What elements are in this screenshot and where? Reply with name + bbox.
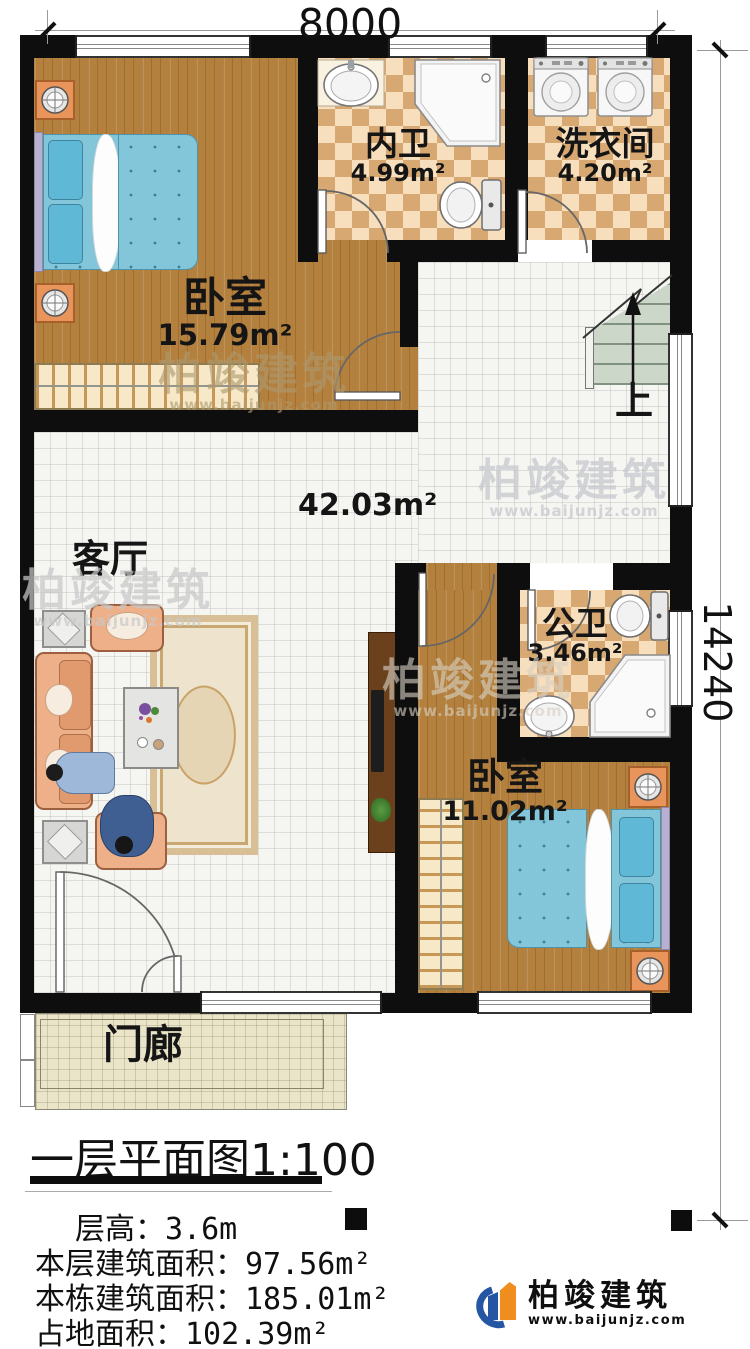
wall-bath-bottom-b [387, 240, 518, 262]
side-table [42, 820, 88, 864]
nightstand [630, 950, 670, 992]
bed-double [34, 132, 198, 272]
bedroom2-corridor-floor [418, 590, 497, 762]
room-label-bedroom2: 卧室 11.02m² [430, 758, 580, 826]
wall-tv [395, 563, 418, 993]
wall-block-top-a [418, 563, 426, 590]
person-head [46, 764, 63, 781]
marker-square [671, 1210, 692, 1231]
room-area: 3.46m² [520, 641, 630, 666]
bed-blanket [118, 134, 198, 270]
side-table-top [47, 612, 80, 645]
window [200, 991, 382, 1014]
room-name: 卧室 [430, 758, 580, 798]
wall-bedroom1-bottom [20, 410, 418, 432]
flower-vase [139, 703, 151, 715]
title-underline-thick [30, 1176, 322, 1184]
company-logo: 柏竣建筑 www.baijunjz.com [476, 1278, 676, 1340]
stairs-up-text: 上 [610, 382, 658, 422]
bed-double [507, 807, 670, 950]
porch-side-step-bottom [20, 1060, 35, 1107]
room-label-living-area: 42.03m² [298, 490, 418, 521]
bed-pillow [619, 817, 654, 877]
logo-company-name: 柏竣建筑 [528, 1280, 686, 1313]
wall-corridor-end [400, 262, 418, 347]
window [477, 991, 652, 1014]
room-label-porch: 门廊 [88, 1025, 198, 1067]
window [545, 35, 648, 58]
wall-left [20, 35, 34, 1013]
stair-handrail [585, 327, 594, 389]
wardrobe [418, 798, 464, 990]
room-name: 卧室 [130, 276, 320, 320]
logo-website: www.baijunjz.com [528, 1313, 686, 1328]
room-name: 客厅 [50, 540, 170, 580]
side-table-top [47, 824, 83, 860]
room-area: 4.99m² [333, 161, 463, 186]
wall-bath-public-left [497, 590, 520, 737]
room-label-bedroom1: 卧室 15.79m² [130, 276, 320, 350]
corridor-door-gap-floor [400, 347, 418, 410]
room-name: 内卫 [333, 127, 463, 161]
porch-side-step-top [20, 1014, 35, 1060]
room-name: 公卫 [520, 607, 630, 641]
cushion-pillow [45, 684, 73, 716]
carpet-medallion [172, 686, 236, 785]
wall-bath-bottom-c [592, 240, 692, 262]
info-value: 102.39m² [185, 1317, 330, 1349]
cup [137, 737, 148, 748]
room-label-laundry: 洗衣间 4.20m² [538, 127, 672, 186]
nightstand [35, 283, 75, 323]
cup [153, 739, 164, 750]
room-area: 42.03m² [298, 490, 418, 521]
side-table [42, 610, 86, 648]
coffee-table [123, 687, 179, 769]
info-land-area: 占地面积：102.39m² [35, 1309, 330, 1349]
wall-block-top-b [497, 563, 530, 590]
nightstand [628, 766, 668, 808]
room-area: 15.79m² [130, 320, 320, 350]
marker-square [345, 1208, 367, 1230]
wall-bedroom1-right [298, 58, 318, 262]
window [75, 35, 251, 58]
bed-blanket [507, 809, 587, 948]
room-area: 11.02m² [430, 798, 580, 826]
bedroom2-doorgap-floor [426, 563, 497, 590]
logo-swoosh-icon [469, 1278, 528, 1336]
room-area: 4.20m² [538, 161, 672, 186]
plant [371, 798, 391, 822]
dim-height-text: 14240 [695, 597, 739, 727]
person-lying [55, 752, 115, 794]
tv-screen [371, 690, 384, 772]
dim-width-text: 8000 [275, 0, 425, 48]
bed-pillow [619, 883, 654, 943]
floor-plan-page: 卧室 15.79m² 内卫 4.99m² 洗衣间 4.20m² 客厅 42.03… [0, 0, 750, 1349]
armchair [90, 604, 164, 652]
room-label-living-name: 客厅 [50, 540, 170, 580]
person-head [115, 836, 133, 854]
title-underline-thin [25, 1191, 332, 1192]
info-label: 占地面积： [35, 1317, 185, 1349]
bed-headboard [34, 132, 43, 272]
nightstand [35, 80, 75, 120]
bed-pillow [48, 204, 83, 264]
room-label-bath-public: 公卫 3.46m² [520, 607, 630, 666]
wardrobe [34, 363, 260, 410]
logo-text-block: 柏竣建筑 www.baijunjz.com [528, 1280, 686, 1328]
room-name: 门廊 [88, 1025, 198, 1067]
wall-right [670, 35, 692, 1013]
wall-block-top-c [613, 563, 692, 590]
wall-bath-divider [505, 58, 528, 240]
bed-headboard [661, 807, 670, 950]
window [668, 333, 693, 507]
window [668, 610, 693, 707]
room-label-bath-inner: 内卫 4.99m² [333, 127, 463, 186]
cushion-pillow [106, 612, 148, 640]
wall-bath-bottom-a [298, 240, 318, 262]
room-name: 洗衣间 [538, 127, 672, 161]
bed-pillow [48, 140, 83, 200]
logo-building-icon [488, 1292, 498, 1320]
stairs-up-label: 上 [610, 382, 658, 422]
